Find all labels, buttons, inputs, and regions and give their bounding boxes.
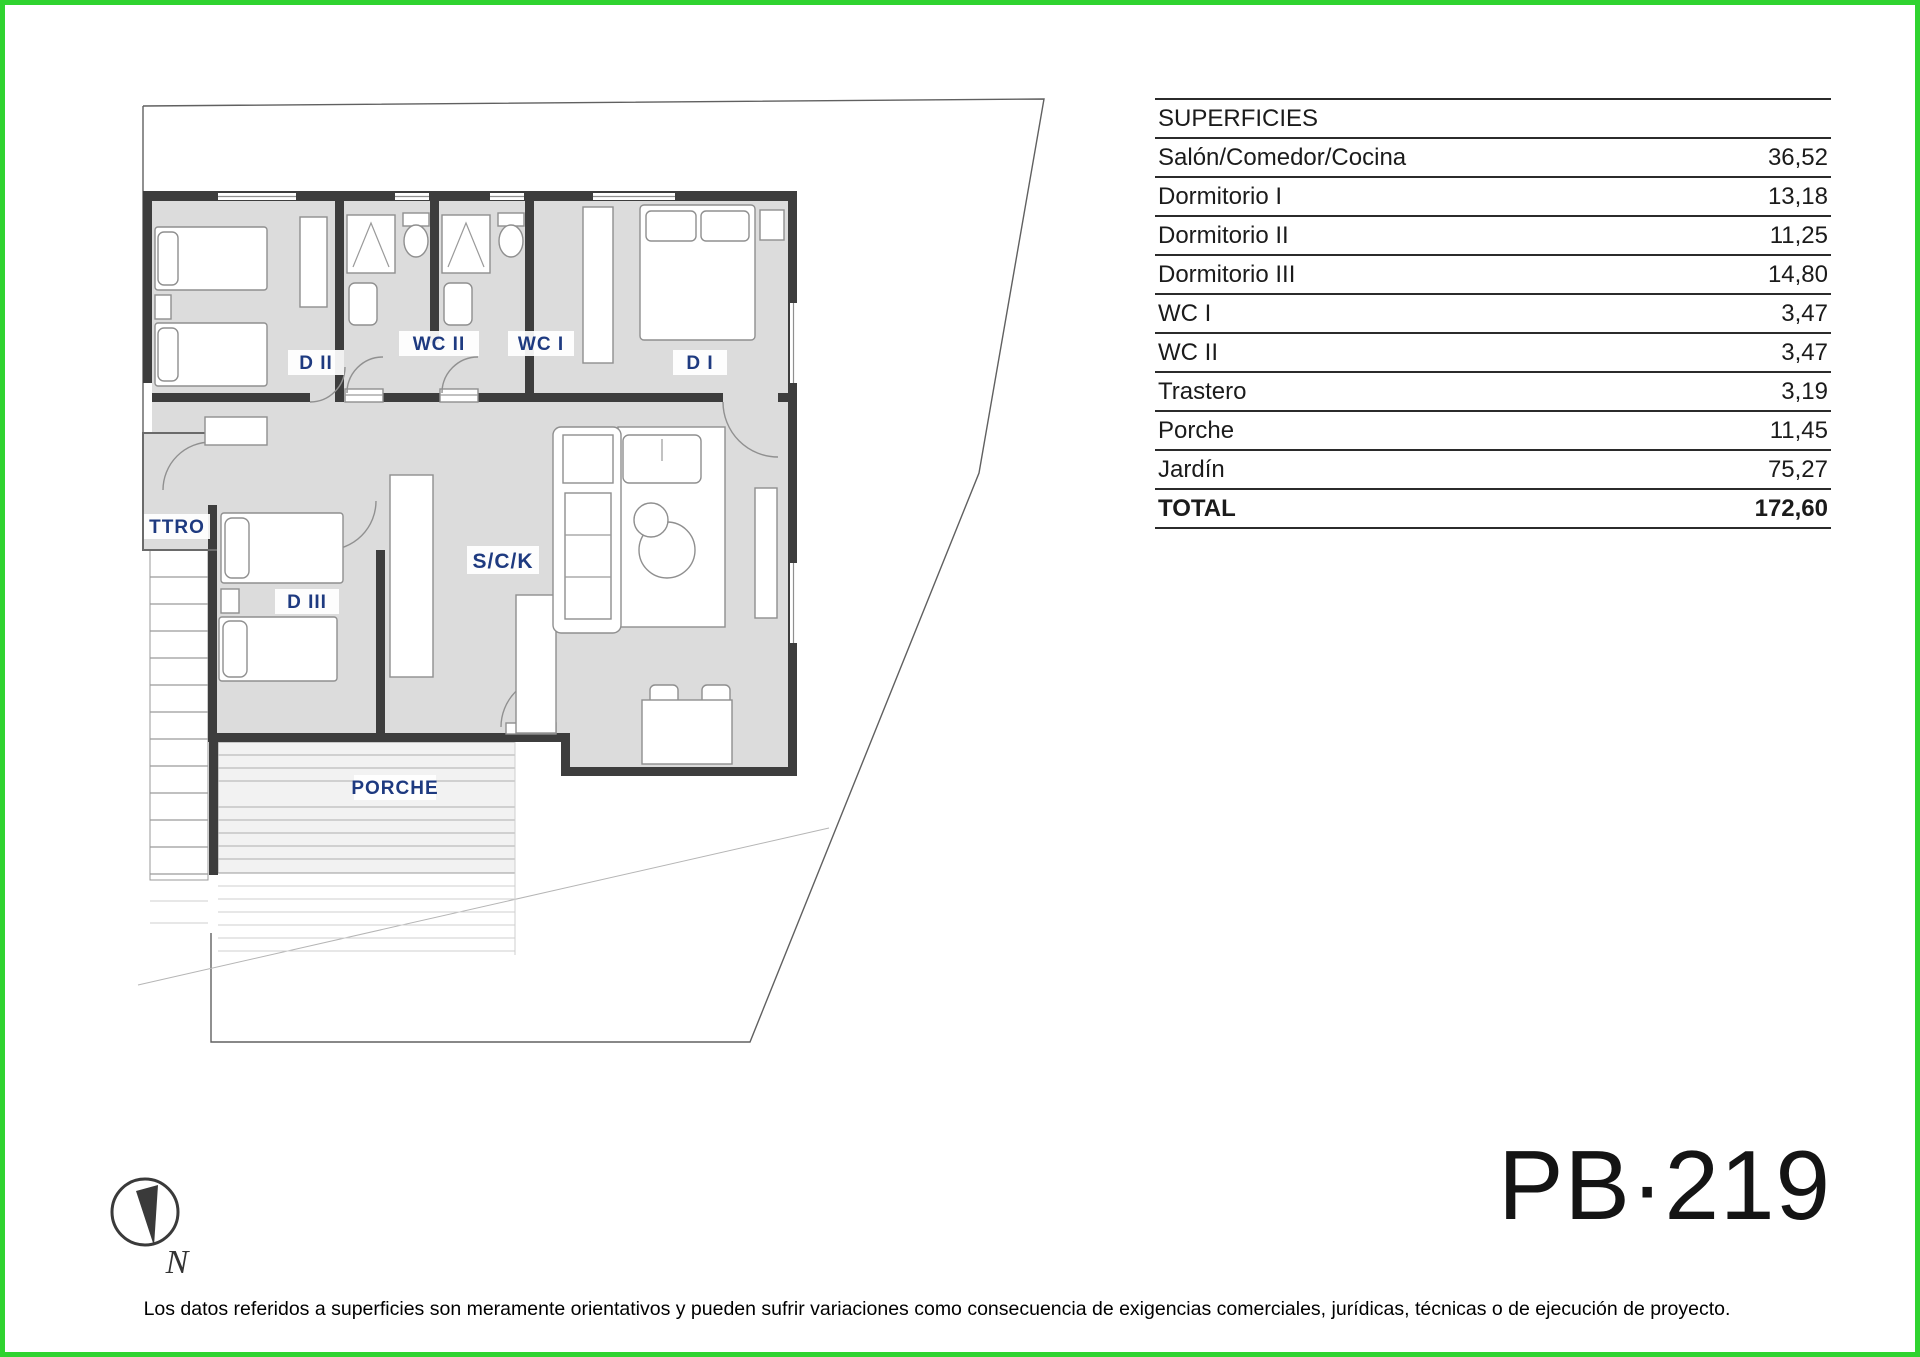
table-row: WC I 3,47: [1155, 293, 1831, 332]
row-value: 3,47: [1781, 334, 1828, 371]
table-row: WC II 3,47: [1155, 332, 1831, 371]
tv-bench: [755, 488, 777, 618]
dining-table: [642, 700, 732, 764]
room-label-d2: D II: [299, 353, 333, 374]
table-row: Dormitorio II 11,25: [1155, 215, 1831, 254]
room-label-wc2: WC II: [413, 334, 466, 355]
row-value: 3,19: [1781, 373, 1828, 410]
table-row: Dormitorio III 14,80: [1155, 254, 1831, 293]
room-label-sck: S/C/K: [472, 550, 533, 573]
table-header-row: SUPERFICIES: [1155, 98, 1831, 137]
chair: [634, 503, 668, 537]
row-value: 11,25: [1770, 217, 1828, 254]
table-title: SUPERFICIES: [1158, 100, 1318, 137]
vestibule: [516, 595, 556, 733]
disclaimer-text: Los datos referidos a superficies son me…: [5, 1298, 1869, 1321]
wardrobe: [583, 207, 613, 363]
row-label: Dormitorio II: [1158, 217, 1289, 254]
row-value: 36,52: [1768, 139, 1828, 176]
compass-north-label: N: [165, 1244, 191, 1281]
closet: [390, 475, 433, 677]
row-value: 3,47: [1781, 295, 1828, 332]
room-label-porche: PORCHE: [351, 778, 438, 799]
row-label: Dormitorio III: [1158, 256, 1295, 293]
north-compass: N: [112, 1179, 191, 1281]
row-label: Jardín: [1158, 451, 1225, 488]
table-row: Dormitorio I 13,18: [1155, 176, 1831, 215]
room-label-d1: D I: [686, 353, 713, 374]
total-value: 172,60: [1755, 490, 1828, 527]
row-label: WC II: [1158, 334, 1218, 371]
table-row: Trastero 3,19: [1155, 371, 1831, 410]
room-label-ttro: TTRO: [149, 517, 205, 538]
stairs: [150, 550, 208, 923]
room-label-d3: D III: [287, 592, 327, 613]
table-row: Porche 11,45: [1155, 410, 1831, 449]
row-value: 14,80: [1768, 256, 1828, 293]
table-row: Jardín 75,27: [1155, 449, 1831, 488]
plan-code: PB·219: [1498, 1129, 1831, 1242]
wardrobe: [300, 217, 327, 307]
row-value: 11,45: [1770, 412, 1828, 449]
row-label: Dormitorio I: [1158, 178, 1282, 215]
total-label: TOTAL: [1158, 490, 1236, 527]
row-value: 75,27: [1768, 451, 1828, 488]
table-total-row: TOTAL 172,60: [1155, 488, 1831, 529]
row-label: Trastero: [1158, 373, 1246, 410]
plan-sheet: D II WC II WC I D I TTRO D III S/C/K POR…: [0, 0, 1920, 1357]
row-label: Porche: [1158, 412, 1234, 449]
porch-deck: [218, 742, 515, 955]
row-label: Salón/Comedor/Cocina: [1158, 139, 1406, 176]
row-value: 13,18: [1768, 178, 1828, 215]
table-row: Salón/Comedor/Cocina 36,52: [1155, 137, 1831, 176]
row-label: WC I: [1158, 295, 1211, 332]
superficies-table: SUPERFICIES Salón/Comedor/Cocina 36,52 D…: [1155, 98, 1831, 529]
room-label-wc1: WC I: [518, 334, 564, 355]
compass-needle-icon: [136, 1185, 158, 1246]
